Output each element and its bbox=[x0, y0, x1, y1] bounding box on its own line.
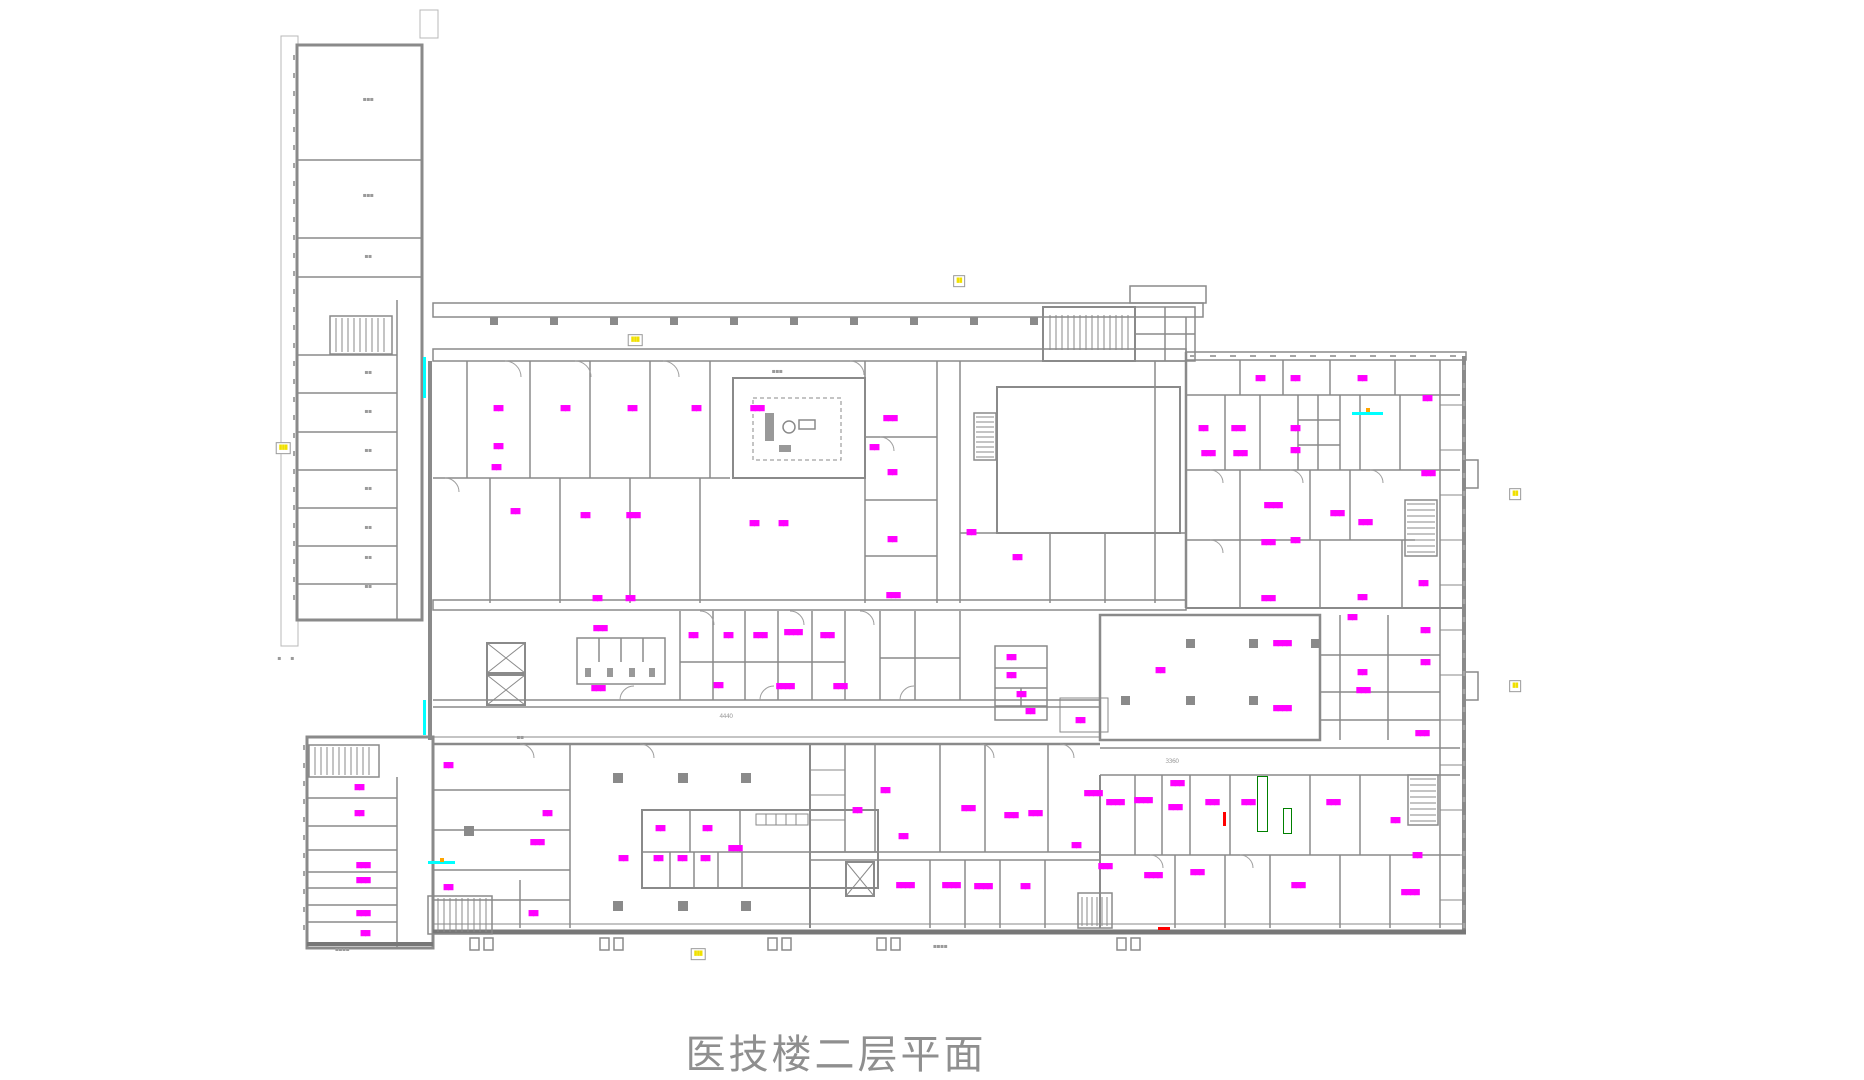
room-label: ▆▆ bbox=[628, 405, 637, 412]
room-label: ▆▆▆ bbox=[1330, 510, 1343, 517]
dimension-label: ▪▪▪ bbox=[363, 193, 374, 199]
room-label: ▆▆▆ bbox=[728, 845, 741, 852]
room-label: ▆▆ bbox=[881, 787, 890, 794]
room-label: ▆▆ bbox=[444, 762, 453, 769]
room-label: ▆▆ bbox=[1391, 817, 1400, 824]
room-label: ▆▆▆▆ bbox=[1084, 790, 1102, 797]
dimension-label: ▪▪ bbox=[364, 486, 371, 492]
room-label: ▆▆▆ bbox=[591, 685, 604, 692]
room-label: ▆▆▆ bbox=[833, 683, 846, 690]
spine-corridor bbox=[433, 286, 1206, 361]
room-label: ▆▆▆ bbox=[1201, 450, 1214, 457]
room-label: ▆▆ bbox=[1291, 375, 1300, 382]
room-label: ▆▆▆ bbox=[530, 839, 543, 846]
room-label: ▆▆ bbox=[1413, 852, 1422, 859]
room-label: ▆▆ bbox=[593, 595, 602, 602]
room-label: ▆▆ bbox=[656, 825, 665, 832]
room-label: ▆▆▆ bbox=[1415, 730, 1428, 737]
room-label: ▆▆▆ bbox=[356, 862, 369, 869]
room-label: ▆▆▆ bbox=[753, 632, 766, 639]
room-label: ▆▆ bbox=[888, 536, 897, 543]
room-label: ▆▆ bbox=[1026, 708, 1035, 715]
room-label: ▆▆▆ bbox=[961, 805, 974, 812]
room-label: ▆▆ bbox=[1072, 842, 1081, 849]
room-label: ▆▆ bbox=[1013, 554, 1022, 561]
room-label: ▆▆ bbox=[1017, 691, 1026, 698]
highlight-tag: ▮▮ bbox=[953, 275, 965, 287]
room-label: ▆▆▆ bbox=[1356, 687, 1369, 694]
highlight-tag: ▮▮▮ bbox=[276, 442, 291, 454]
room-label: ▆▆▆ bbox=[1358, 519, 1371, 526]
room-label: ▆▆▆▆ bbox=[942, 882, 960, 889]
room-label: ▆▆ bbox=[626, 595, 635, 602]
room-label: ▆▆ bbox=[724, 632, 733, 639]
upper-rooms bbox=[433, 361, 1186, 610]
room-label: ▆▆▆ bbox=[1098, 863, 1111, 870]
room-label: ▆▆ bbox=[444, 884, 453, 891]
room-label: ▆▆ bbox=[779, 520, 788, 527]
room-label: ▆▆▆ bbox=[750, 405, 763, 412]
room-label: ▆▆▆ bbox=[1241, 799, 1254, 806]
room-label: ▆▆ bbox=[1076, 717, 1085, 724]
dimension-label: ▪▪ bbox=[364, 584, 371, 590]
room-label: ▆▆▆ bbox=[626, 512, 639, 519]
room-label: ▆▆ bbox=[750, 520, 759, 527]
room-label: ▆▆▆▆ bbox=[1264, 502, 1282, 509]
utility-cyan-mark bbox=[423, 357, 426, 398]
room-label: ▆▆ bbox=[511, 508, 520, 515]
room-label: ▆▆ bbox=[494, 443, 503, 450]
room-label: ▆▆▆ bbox=[1261, 539, 1274, 546]
room-label: ▆▆▆ bbox=[1326, 799, 1339, 806]
utility-cyan-mark bbox=[1352, 412, 1383, 415]
room-label: ▆▆ bbox=[899, 833, 908, 840]
room-label: ▆▆▆ bbox=[1168, 804, 1181, 811]
room-label: ▆▆ bbox=[1358, 669, 1367, 676]
room-label: ▆▆ bbox=[692, 405, 701, 412]
room-label: ▆▆▆ bbox=[883, 415, 896, 422]
alert-red-mark bbox=[1223, 812, 1226, 826]
room-label: ▆▆▆ bbox=[1291, 882, 1304, 889]
dimension-label: ▪▪▪▪ bbox=[933, 944, 947, 950]
drawing-title: 医技楼二层平面 bbox=[686, 1022, 987, 1080]
room-label: ▆▆ bbox=[1199, 425, 1208, 432]
room-label: ▆▆▆▆ bbox=[784, 629, 802, 636]
highlight-tag: ▮▮ bbox=[1509, 680, 1521, 692]
room-label: ▆▆ bbox=[888, 469, 897, 476]
room-label: ▆▆ bbox=[714, 682, 723, 689]
room-label: ▆▆▆ bbox=[356, 910, 369, 917]
room-label: ▆▆ bbox=[1421, 627, 1430, 634]
orange-dot-mark bbox=[440, 858, 444, 862]
room-label: ▆▆ bbox=[1291, 537, 1300, 544]
room-label: ▆▆▆ bbox=[886, 592, 899, 599]
room-label: ▆▆ bbox=[543, 810, 552, 817]
room-label: ▆▆ bbox=[689, 632, 698, 639]
room-label: ▆▆ bbox=[581, 512, 590, 519]
room-label: ▆▆▆ bbox=[820, 632, 833, 639]
room-label: ▆▆▆▆ bbox=[776, 683, 794, 690]
dimension-label: ▪▪▪ bbox=[363, 97, 374, 103]
room-label: ▆▆ bbox=[355, 784, 364, 791]
room-label: ▆▆▆▆ bbox=[1134, 797, 1152, 804]
room-label: ▆▆ bbox=[654, 855, 663, 862]
dimension-label: ▪▪▪▪ bbox=[335, 947, 349, 953]
dimension-label: ▪ bbox=[277, 656, 281, 662]
room-label: ▆▆ bbox=[561, 405, 570, 412]
room-label: ▆▆▆ bbox=[1205, 799, 1218, 806]
room-label: ▆▆▆ bbox=[1028, 810, 1041, 817]
room-label: ▆▆ bbox=[1256, 375, 1265, 382]
utility-cyan-mark bbox=[423, 700, 426, 735]
room-label: ▆▆ bbox=[1291, 447, 1300, 454]
room-label: ▆▆ bbox=[1007, 654, 1016, 661]
room-label: ▆▆ bbox=[494, 405, 503, 412]
orange-dot-mark bbox=[1366, 408, 1370, 412]
room-label: ▆▆ bbox=[701, 855, 710, 862]
dimension-label: ▪▪ bbox=[516, 735, 523, 741]
room-label: ▆▆ bbox=[1021, 883, 1030, 890]
floorplan-canvas: ▆▆▆▆▆▆▆▆▆▆▆▆▆▆▆▆▆▆▆▆▆▆▆▆▆▆▆▆▆▆▆▆▆▆▆▆▆▆▆▆… bbox=[0, 0, 1864, 1080]
equipment-green-mark bbox=[1257, 776, 1268, 832]
room-label: ▆▆▆▆ bbox=[1401, 889, 1419, 896]
entrance-columns bbox=[470, 938, 1140, 950]
right-cluster bbox=[1186, 352, 1466, 928]
room-label: ▆▆▆ bbox=[356, 877, 369, 884]
equipment-green-mark bbox=[1283, 808, 1292, 834]
middle-band bbox=[433, 611, 1460, 775]
dimension-label: ▪▪ bbox=[364, 525, 371, 531]
room-label: ▆▆ bbox=[619, 855, 628, 862]
room-label: ▆▆ bbox=[1358, 594, 1367, 601]
room-label: ▆▆ bbox=[361, 930, 370, 937]
room-label: ▆▆▆▆ bbox=[974, 883, 992, 890]
room-label: ▆▆ bbox=[1421, 659, 1430, 666]
dimension-label: ▪ bbox=[290, 656, 294, 662]
room-label: ▆▆▆▆ bbox=[1144, 872, 1162, 879]
room-label: ▆▆ bbox=[1419, 580, 1428, 587]
room-label: ▆▆ bbox=[1348, 614, 1357, 621]
floorplan-drawing bbox=[0, 0, 1864, 1080]
room-label: ▆▆ bbox=[1423, 395, 1432, 402]
dimension-label: 4440 bbox=[719, 714, 732, 720]
room-label: ▆▆ bbox=[1291, 425, 1300, 432]
room-label: ▆▆▆ bbox=[1004, 812, 1017, 819]
highlight-tag: ▮▮ bbox=[1509, 488, 1521, 500]
bottom-left-wing bbox=[307, 737, 433, 948]
room-label: ▆▆▆▆ bbox=[1273, 640, 1291, 647]
room-label: ▆▆ bbox=[1156, 667, 1165, 674]
dimension-label: ▪▪ bbox=[364, 409, 371, 415]
room-label: ▆▆▆ bbox=[1190, 869, 1203, 876]
room-label: ▆▆ bbox=[355, 810, 364, 817]
room-label: ▆▆ bbox=[967, 529, 976, 536]
alert-red-mark bbox=[1158, 927, 1170, 930]
dimension-label: ▪▪▪ bbox=[772, 369, 783, 375]
room-label: ▆▆ bbox=[853, 807, 862, 814]
dimension-label: 3360 bbox=[1165, 759, 1178, 765]
dimension-label: ▪▪ bbox=[364, 555, 371, 561]
room-label: ▆▆ bbox=[529, 910, 538, 917]
highlight-tag: ▮▮▮ bbox=[628, 334, 643, 346]
dimension-label: ▪▪ bbox=[364, 370, 371, 376]
room-label: ▆▆▆ bbox=[1233, 450, 1246, 457]
room-label: ▆▆ bbox=[1007, 672, 1016, 679]
room-label: ▆▆▆ bbox=[1421, 470, 1434, 477]
room-label: ▆▆▆▆ bbox=[896, 882, 914, 889]
dimension-label: ▪▪ bbox=[364, 448, 371, 454]
highlight-tag: ▮▮▮ bbox=[691, 948, 706, 960]
room-label: ▆▆▆ bbox=[593, 625, 606, 632]
lower-block bbox=[433, 737, 1460, 928]
room-label: ▆▆▆ bbox=[1170, 780, 1183, 787]
room-label: ▆▆▆▆ bbox=[1106, 799, 1124, 806]
room-label: ▆▆ bbox=[678, 855, 687, 862]
room-label: ▆▆▆▆ bbox=[1273, 705, 1291, 712]
room-label: ▆▆▆ bbox=[1231, 425, 1244, 432]
room-label: ▆▆ bbox=[703, 825, 712, 832]
room-label: ▆▆ bbox=[1358, 375, 1367, 382]
room-label: ▆▆ bbox=[870, 444, 879, 451]
dimension-label: ▪▪ bbox=[364, 254, 371, 260]
room-label: ▆▆ bbox=[492, 464, 501, 471]
room-label: ▆▆▆ bbox=[1261, 595, 1274, 602]
